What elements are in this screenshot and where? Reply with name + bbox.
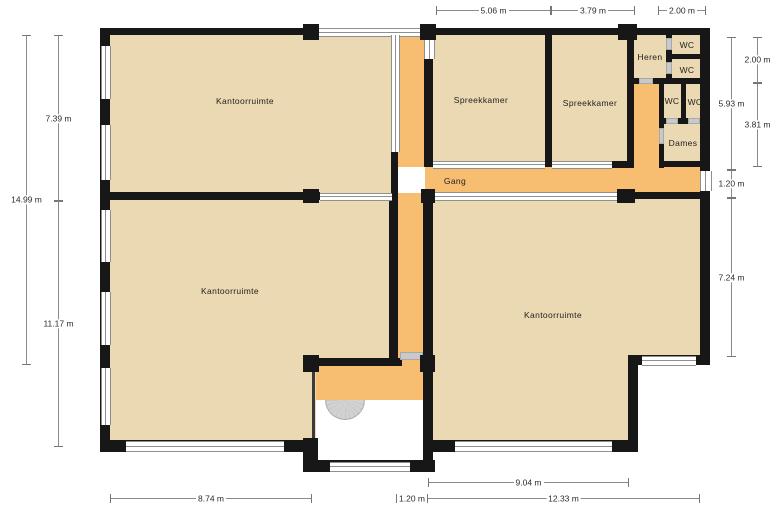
door-wc-2 [666, 62, 672, 74]
dim-label: 9.04 m [514, 478, 544, 487]
column-corridor-2 [617, 189, 635, 203]
window-left-3 [101, 210, 111, 262]
wall-spreekkamer-divider [545, 34, 552, 167]
window-bottom-left-room [126, 441, 284, 452]
dim-label: 7.39 m [44, 114, 74, 123]
room-label-heren: Heren [638, 53, 663, 62]
room-label-wc-2: WC [680, 66, 695, 75]
wall-vestibule-left-thin [312, 372, 315, 438]
column-corridor-1 [421, 189, 435, 203]
wall-wc1-wc2-divider [666, 54, 707, 59]
door-wc-4 [688, 118, 700, 124]
dim-label: 3.81 m [743, 120, 773, 129]
wall-left-offices-divider [103, 192, 320, 200]
door-main-entrance [330, 462, 410, 472]
room-label-kantoorruimte-top-left: Kantoorruimte [216, 97, 274, 106]
dim-label: 2.00 m [743, 55, 773, 64]
dim-label: 1.20 m [397, 494, 427, 503]
room-label-wc-4: WC [688, 98, 703, 107]
dim-top-2-00: 2.00 m [658, 6, 706, 15]
room-label-wc-1: WC [680, 41, 695, 50]
wall-notch-vertical [628, 355, 638, 452]
wall-corridor-right-lower [423, 199, 433, 360]
corridor-fill-vertical-bottom [398, 193, 425, 360]
dim-label: 8.74 m [196, 494, 226, 503]
window-left-1 [101, 46, 111, 99]
wall-vestibule-top [316, 358, 402, 366]
window-left-2 [101, 125, 111, 180]
glass-corridor-left [391, 35, 400, 152]
dim-label: 5.06 m [479, 6, 509, 15]
dim-right-2-00: 2.00 m [753, 37, 762, 83]
room-label-spreekkamer-right: Spreekkamer [563, 99, 617, 108]
wall-corridor-right-upper [424, 58, 433, 167]
door-spreekkamer-left [424, 37, 435, 59]
dim-right-1-20: 1.20 m [727, 170, 736, 198]
wall-vestibule-right [423, 360, 433, 472]
corridor-fill-vertical-top [398, 33, 425, 167]
dim-left-11-17: 11.17 m [54, 200, 63, 447]
door-wc-1 [666, 38, 672, 50]
dim-label: 11.17 m [41, 319, 75, 328]
dim-label: 12.33 m [546, 494, 581, 503]
dim-left-7-39: 7.39 m [54, 35, 63, 202]
dim-top-3-79: 3.79 m [551, 6, 635, 15]
dim-label: 7.24 m [717, 273, 747, 282]
column-vestibule-left [303, 355, 319, 372]
door-exit-right-corridor [700, 171, 712, 191]
column-top-1 [303, 24, 319, 40]
door-dames [659, 128, 664, 144]
wall-dames-block-left [659, 84, 664, 168]
room-fill-right-lower [425, 362, 638, 445]
column-left-divider [303, 189, 319, 203]
dim-label: 3.79 m [578, 6, 608, 15]
dim-bottom-8-74: 8.74 m [110, 494, 312, 503]
room-label-dames: Dames [669, 139, 698, 148]
room-label-spreekkamer-left: Spreekkamer [454, 96, 508, 105]
wall-wc-block-left [627, 34, 634, 168]
wall-corridor-left-upper [391, 152, 398, 200]
wall-vestibule-left-base [303, 438, 318, 462]
dim-right-3-81: 3.81 m [753, 83, 762, 167]
dim-label: 2.00 m [667, 6, 697, 15]
vestibule-fill-hall [316, 360, 423, 400]
wall-dames-bottom [659, 161, 707, 167]
column-top-3 [618, 24, 637, 40]
dim-bottom-12-33: 12.33 m [427, 494, 700, 503]
column-top-2 [420, 24, 436, 40]
wall-wc3-wc4-divider [681, 84, 686, 120]
dim-left-14-99: 14.99 m [22, 35, 31, 365]
floor-plan: Kantoorruimte Spreekkamer Spreekkamer He… [0, 0, 780, 520]
dim-bottom-1-20: 1.20 m [396, 494, 428, 503]
glass-spreekkamer-right-front [552, 161, 612, 169]
wall-spreekkamer-front-end [612, 161, 628, 168]
dim-label: 1.20 m [717, 179, 747, 188]
wall-corridor-bottom-east [635, 192, 701, 199]
corridor-fill-horizontal [425, 167, 701, 193]
dim-label: 5.93 m [717, 99, 747, 108]
dim-right-7-24: 7.24 m [727, 198, 736, 357]
wall-corridor-left-lower [389, 200, 398, 360]
glass-corridor-bottom [435, 192, 617, 201]
door-heren [639, 78, 653, 84]
dim-bottom-9-04: 9.04 m [428, 478, 629, 487]
dim-label: 14.99 m [9, 195, 44, 204]
dim-right-5-93: 5.93 m [727, 37, 736, 170]
door-wc-3 [666, 118, 678, 124]
window-left-5 [101, 368, 111, 425]
room-label-kantoorruimte-bottom-left: Kantoorruimte [201, 287, 259, 296]
glass-spreekkamer-left-front [433, 161, 545, 169]
glass-left-divider [320, 193, 392, 201]
dim-top-5-06: 5.06 m [436, 6, 551, 15]
window-notch [642, 356, 696, 366]
window-left-4 [101, 292, 111, 345]
room-label-wc-3: WC [665, 97, 680, 106]
room-label-gang: Gang [444, 177, 466, 186]
room-label-kantoorruimte-bottom-right: Kantoorruimte [524, 311, 582, 320]
window-bottom-right-room [455, 441, 612, 452]
window-top-over-corridor [319, 28, 420, 37]
corridor-fill-toilet-access [633, 83, 661, 167]
column-vestibule-right [420, 355, 435, 372]
